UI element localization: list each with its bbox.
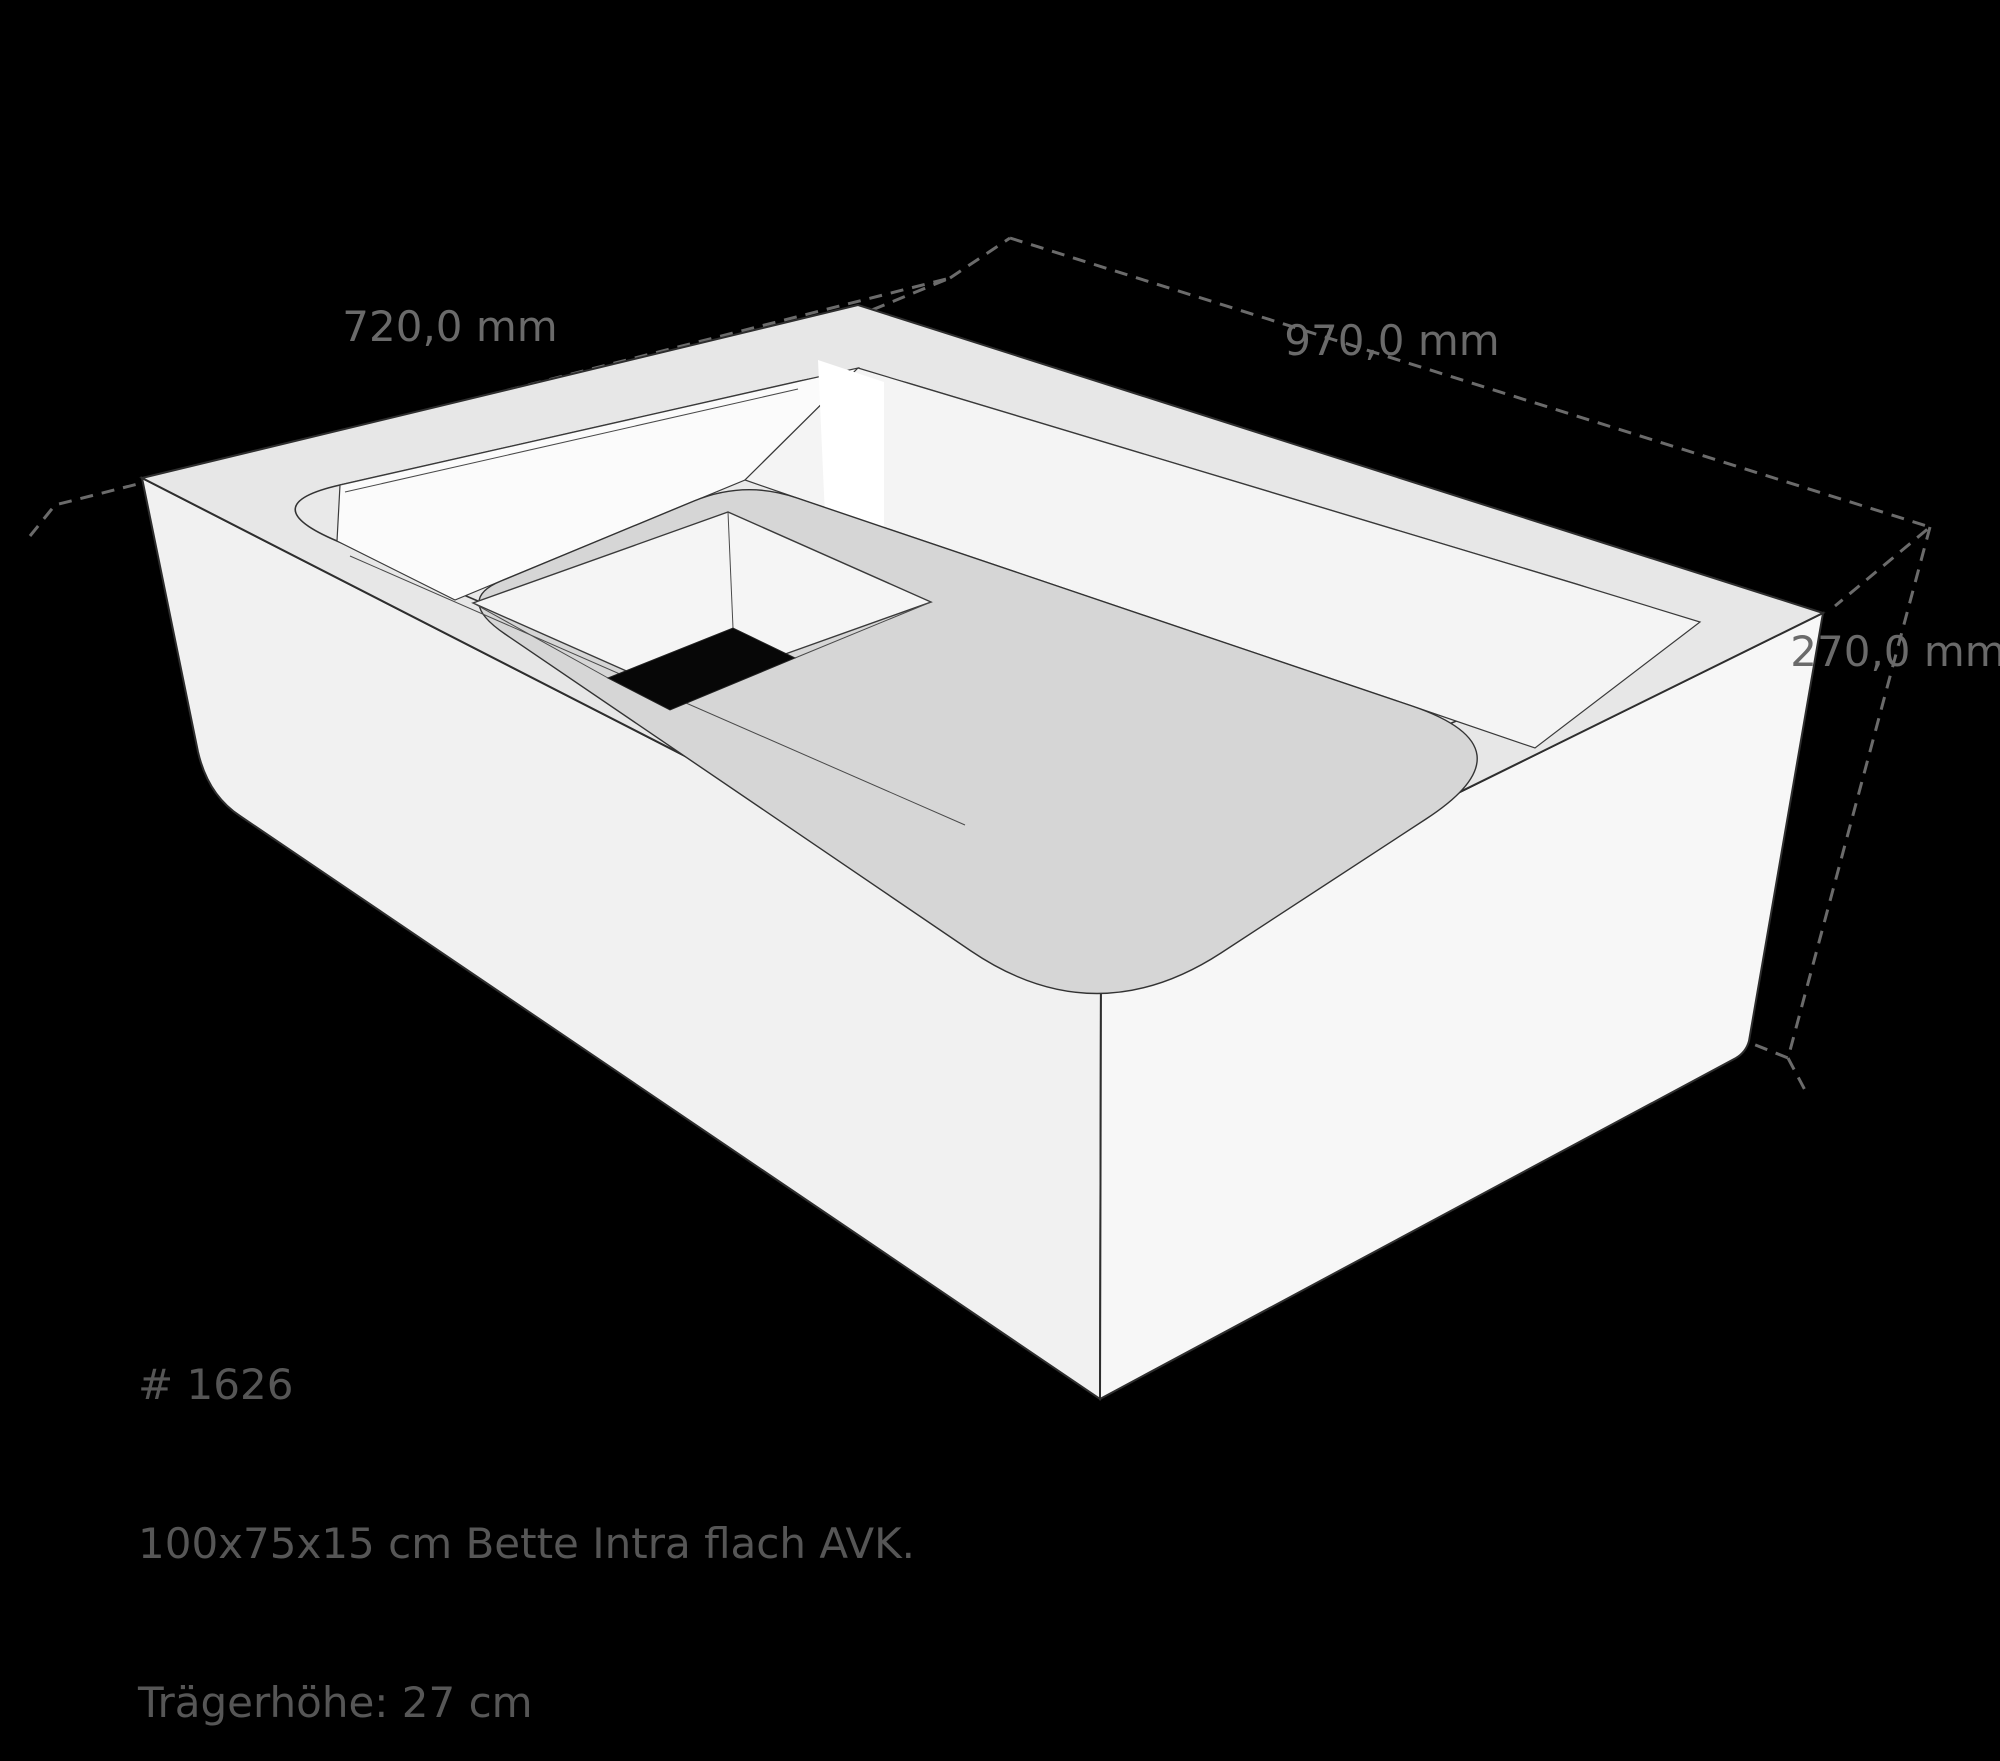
product-description: 100x75x15 cm Bette Intra flach AVK. (138, 1517, 915, 1570)
dimension-line-width-bridge (950, 238, 1010, 278)
dimension-label-depth: 970,0 mm (1284, 316, 1499, 365)
drawing-canvas: 720,0 mm 970,0 mm 270,0 mm # 1626 100x75… (0, 0, 2000, 1761)
dimension-line-height-tail (1788, 1058, 1806, 1092)
product-info-block: # 1626 100x75x15 cm Bette Intra flach AV… (138, 1252, 915, 1761)
carrier-height: Trägerhöhe: 27 cm (138, 1676, 915, 1729)
support-block (142, 305, 1823, 1399)
product-number: # 1626 (138, 1358, 915, 1411)
dimension-label-width: 720,0 mm (342, 302, 557, 351)
dimension-label-height: 270,0 mm (1790, 627, 2000, 676)
